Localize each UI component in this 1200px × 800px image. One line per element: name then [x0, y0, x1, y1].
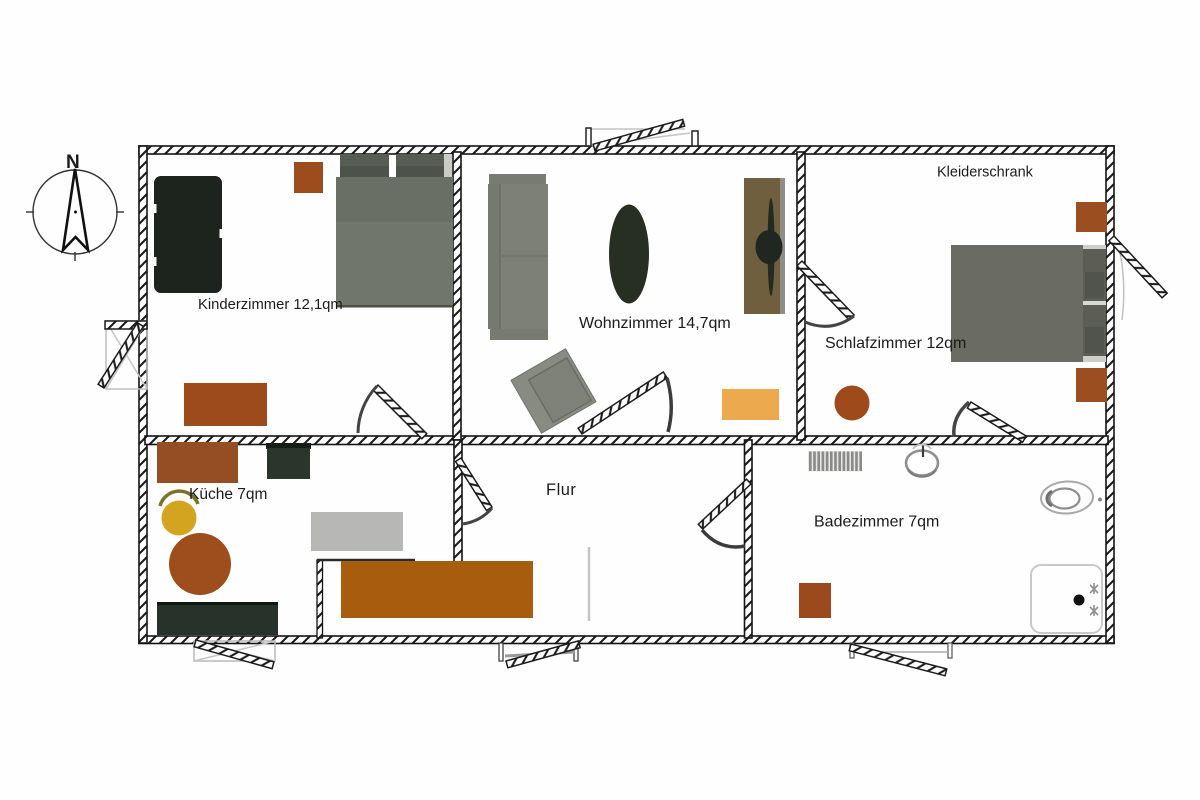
svg-text:Schlafzimmer 12qm: Schlafzimmer 12qm — [825, 335, 966, 352]
svg-text:Badezimmer 7qm: Badezimmer 7qm — [814, 514, 939, 531]
svg-text:Kinderzimmer 12,1qm: Kinderzimmer 12,1qm — [198, 297, 343, 313]
svg-text:Kleiderschrank: Kleiderschrank — [937, 165, 1034, 181]
svg-text:Wohnzimmer 14,7qm: Wohnzimmer 14,7qm — [579, 315, 731, 332]
svg-text:N: N — [66, 152, 80, 173]
svg-text:Flur: Flur — [546, 481, 576, 499]
svg-text:Küche 7qm: Küche 7qm — [189, 486, 267, 503]
